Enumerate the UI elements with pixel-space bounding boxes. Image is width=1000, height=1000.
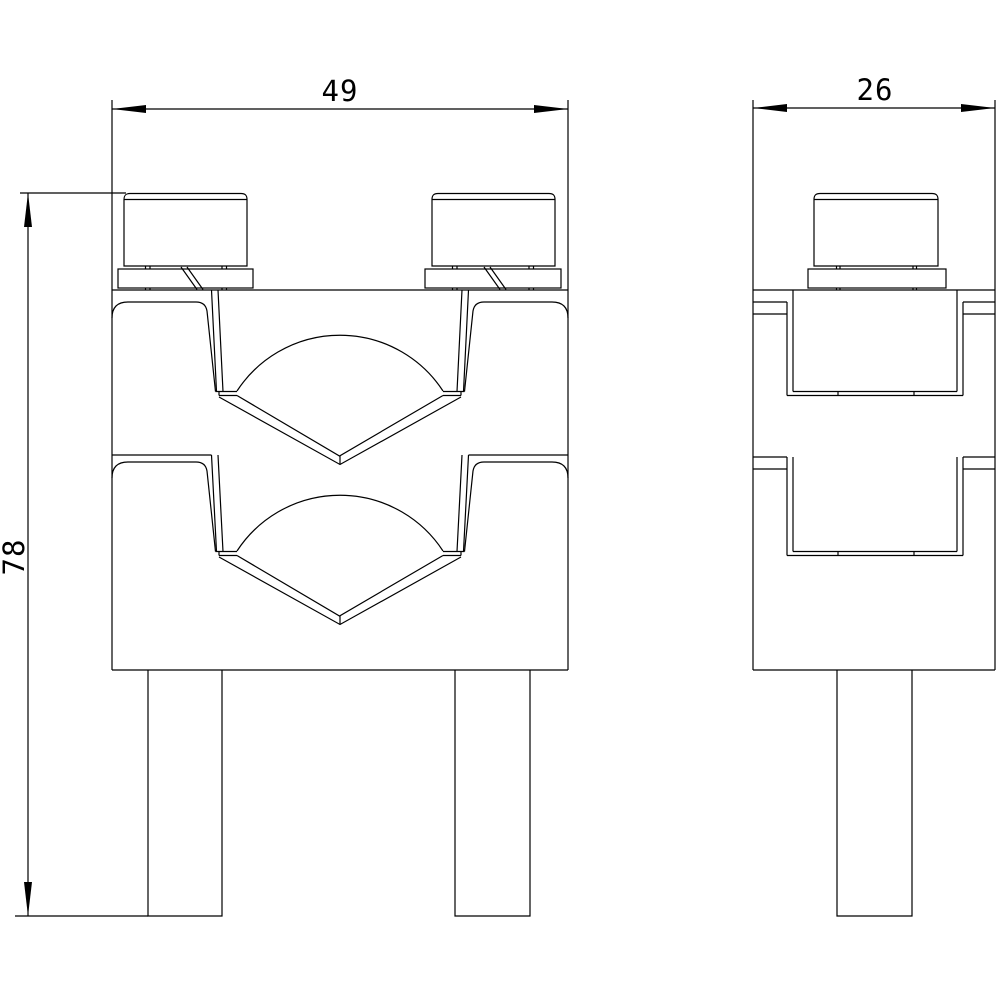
arrowhead-left [753,104,787,112]
cavity-left-contour [112,302,216,392]
side-screw [808,194,946,291]
shelf-left [216,552,238,556]
height-dimension: 78 [0,193,148,916]
front-right-screw [425,194,561,291]
funnel-wall-left [212,455,224,552]
arrowhead-right [961,104,995,112]
v-groove-outer [219,397,461,465]
v-groove-outer [219,557,461,625]
front-right-leg [455,670,530,916]
cavity-left-contour [112,462,216,552]
arrowhead-top [24,193,32,227]
funnel-wall-left [212,290,224,392]
side-view [753,100,995,916]
front-left-screw [118,194,253,291]
shelf-right [443,552,465,556]
v-groove-inner [237,396,443,457]
screw-head [124,194,247,267]
shelf-left [216,392,238,396]
cavity-right-contour [465,302,569,392]
front-left-leg [148,670,222,916]
washer-slash-marks [484,267,506,290]
screw-head [432,194,555,267]
funnel-wall-right [457,455,469,552]
technical-drawing-page: 49 26 78 [0,0,1000,1000]
clamp-washer [118,269,253,288]
cavity-bottom [787,552,963,556]
depth-dimension-value: 26 [857,73,894,107]
front-lower-clamp-pocket [112,455,568,625]
cavity-walls [787,457,963,556]
side-upper-pocket [753,290,995,396]
ledge-lines [753,302,995,314]
width-dimension: 49 [112,74,568,113]
side-leg [837,670,912,916]
arrowhead-right [534,105,568,113]
arrowhead-left [112,105,146,113]
wire-arc [237,495,443,551]
arrowhead-bottom [24,882,32,916]
cavity-bottom [787,392,963,396]
cavity-walls [787,290,963,396]
front-view [112,100,568,916]
height-dimension-value: 78 [0,539,31,576]
cavity-right-contour [465,462,569,552]
side-lower-pocket [753,457,995,556]
technical-drawing-canvas: 49 26 78 [0,0,1000,1000]
front-upper-clamp-pocket [112,290,568,465]
funnel-wall-right [457,290,469,392]
wire-arc [237,335,443,391]
washer-slash-marks [181,267,203,290]
width-dimension-value: 49 [322,74,359,108]
clamp-washer [808,269,946,288]
v-groove-inner [237,556,443,617]
screw-head [814,194,938,267]
shelf-right [443,392,465,396]
ledge-lines [753,457,995,469]
depth-dimension: 26 [753,73,995,112]
